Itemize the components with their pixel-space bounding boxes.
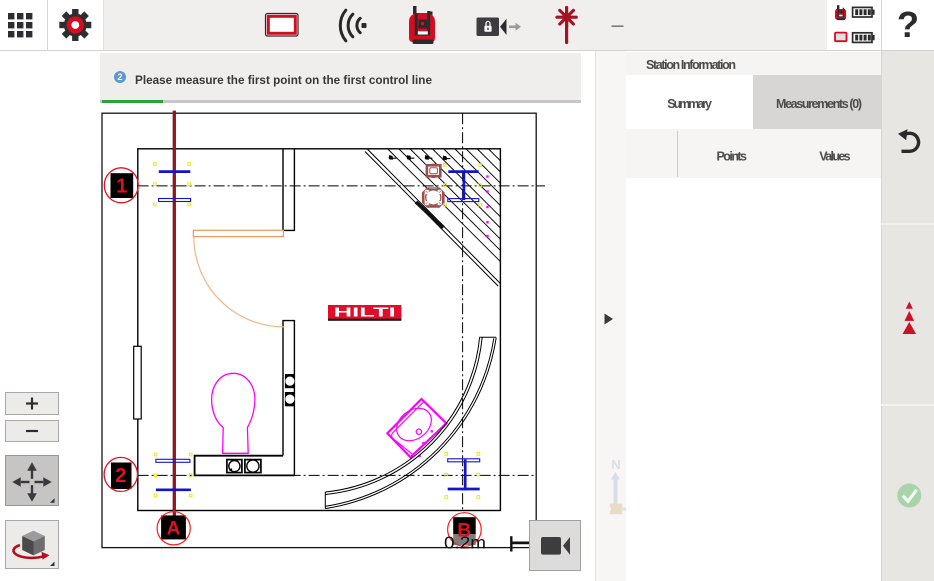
svg-text:Summary: Summary	[667, 97, 712, 111]
svg-text:N: N	[611, 457, 620, 472]
svg-text:Points: Points	[717, 150, 748, 164]
svg-text:Measurements (0): Measurements (0)	[776, 97, 862, 111]
svg-text:Station Information: Station Information	[646, 58, 736, 72]
svg-text:Please measure the first point: Please measure the first point on the fi…	[135, 75, 432, 87]
svg-text:1: 1	[116, 176, 127, 198]
svg-text:0.2m: 0.2m	[444, 533, 486, 553]
svg-text:?: ?	[897, 4, 919, 45]
svg-text:HILTI: HILTI	[334, 304, 396, 319]
svg-text:2: 2	[115, 465, 126, 487]
svg-text:Values: Values	[819, 150, 850, 164]
svg-text:A: A	[167, 519, 181, 540]
